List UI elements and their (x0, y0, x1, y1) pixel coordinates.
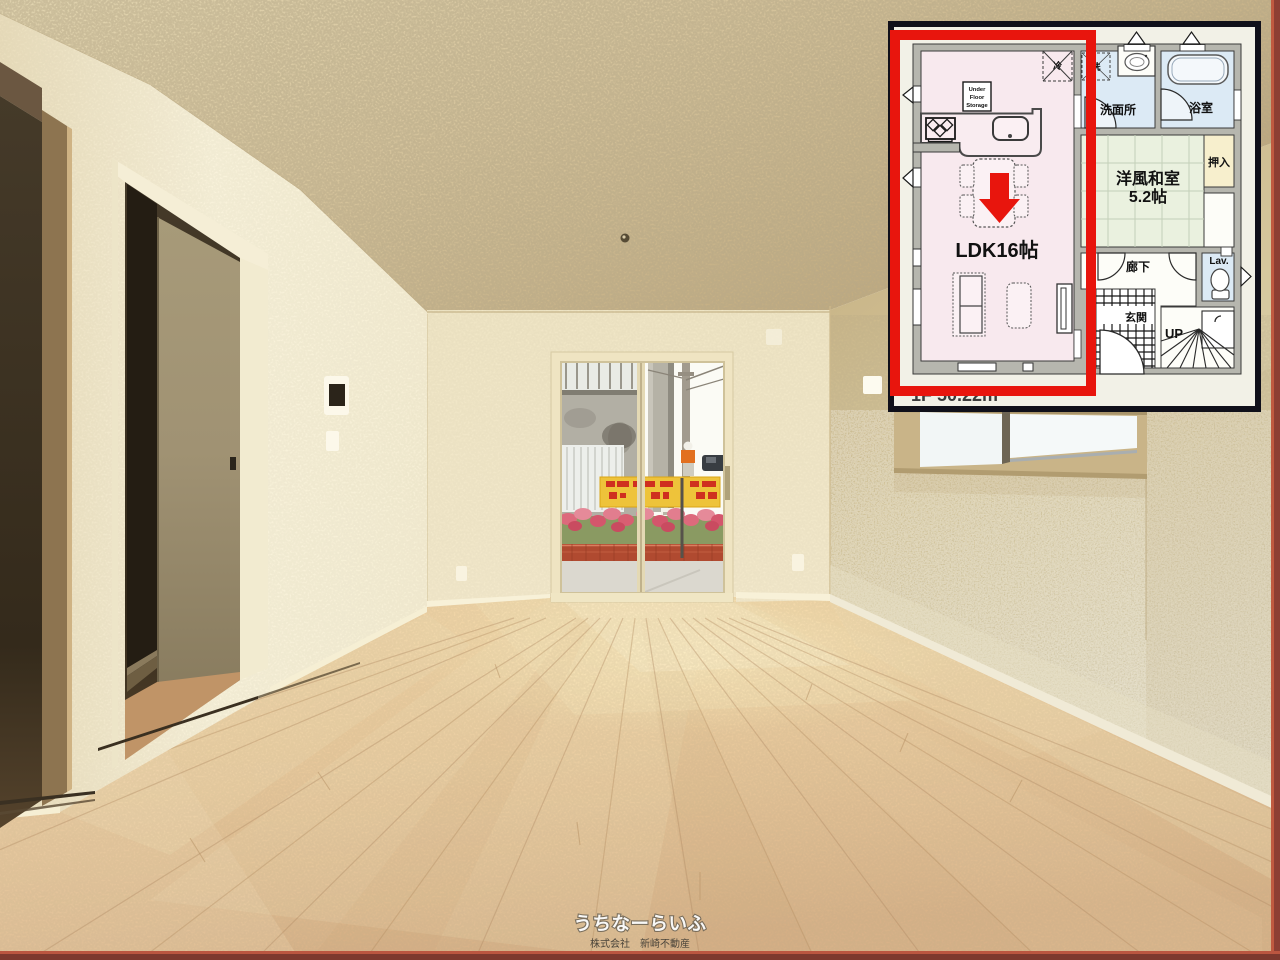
svg-text:押入: 押入 (1208, 155, 1230, 169)
svg-text:株式会社 新崎不動産: 株式会社 新崎不動産 (590, 937, 690, 950)
svg-text:LDK16帖: LDK16帖 (955, 239, 1038, 262)
svg-text:Lav.: Lav. (1209, 256, 1228, 267)
svg-text:洋風和室: 洋風和室 (1116, 169, 1180, 188)
svg-text:浴室: 浴室 (1189, 100, 1213, 115)
svg-text:うちなーらいふ: うちなーらいふ (573, 913, 706, 934)
svg-text:UP: UP (1165, 326, 1183, 341)
svg-text:洗面所: 洗面所 (1100, 102, 1136, 117)
svg-text:Under: Under (969, 87, 986, 93)
svg-text:Floor: Floor (970, 95, 985, 101)
svg-text:廊下: 廊下 (1126, 259, 1150, 274)
svg-text:5.2帖: 5.2帖 (1129, 187, 1167, 206)
svg-text:冷: 冷 (1053, 60, 1062, 71)
svg-text:Storage: Storage (966, 103, 988, 109)
svg-text:玄関: 玄関 (1125, 310, 1147, 324)
